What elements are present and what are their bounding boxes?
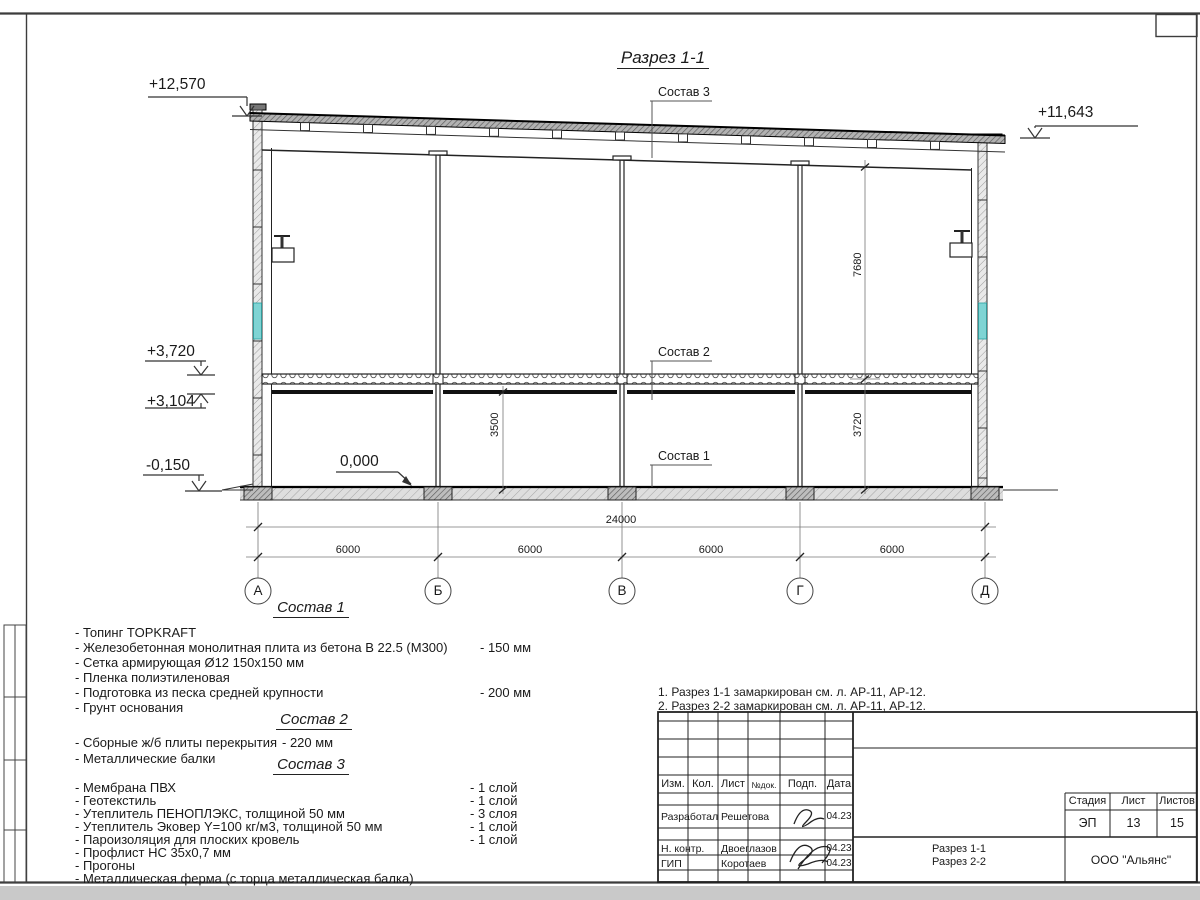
tb-date-1: 04.23 — [825, 811, 853, 822]
dim-bay-2: 6000 — [510, 545, 550, 557]
tb-date-3: 04.23 — [825, 858, 853, 869]
legend-item: - Пленка полиэтиленовая — [75, 670, 230, 685]
tb-company: ООО "Альянс" — [1065, 853, 1197, 867]
dim-height-lower: 3720 — [853, 405, 865, 445]
left-wall — [253, 110, 262, 492]
tb-col-data: Дата — [825, 778, 853, 790]
screen-bottom-strip — [0, 886, 1200, 900]
elevation-floor-bottom: +3,104 — [147, 394, 195, 410]
tb-name-3: Коротаев — [721, 858, 766, 870]
tb-role-1: Разработал — [661, 811, 718, 823]
tb-col-izm: Изм. — [659, 778, 687, 790]
left-wall-glazing — [254, 303, 262, 339]
legend-item: - Топинг TOPKRAFT — [75, 625, 196, 640]
legend-item: - Сетка армирующая Ø12 150x150 мм — [75, 655, 304, 670]
elevation-floor-top: +3,720 — [147, 344, 195, 360]
axis-bubble-d: Д — [973, 584, 997, 598]
tb-stage-label: Стадия — [1065, 795, 1110, 807]
tb-stage-value: ЭП — [1065, 816, 1110, 830]
tb-sheet-value: 13 — [1110, 816, 1157, 830]
elevation-ground: -0,150 — [146, 458, 190, 474]
callout-sostav3: Состав 3 — [658, 86, 710, 99]
tb-col-podp: Подп. — [780, 778, 825, 790]
tb-sheets-label: Листов — [1157, 795, 1197, 807]
callout-sostav2: Состав 2 — [658, 346, 710, 359]
elevation-marks — [143, 97, 1138, 491]
left-margin-boxes — [4, 625, 26, 882]
axis-bubble-b: Б — [426, 584, 450, 598]
axis-bubble-v: В — [610, 584, 634, 598]
note-line-1: 1. Разрез 1-1 замаркирован см. л. АР-11,… — [658, 686, 926, 699]
tb-col-kol: Кол. — [688, 778, 718, 790]
signatures — [790, 810, 830, 869]
legend-item: - Металлические балки — [75, 751, 215, 766]
drawing-sheet: Разрез 1-1 Состав 3 Состав 2 Состав 1 +1… — [0, 0, 1200, 900]
legend-item: - Металлическая ферма (с торца металличе… — [75, 871, 414, 886]
dim-bay-4: 6000 — [872, 545, 912, 557]
wall-brackets — [272, 231, 972, 262]
tb-sheet-label: Лист — [1110, 795, 1157, 807]
building-section — [222, 104, 1058, 500]
drawing-title: Разрез 1-1 — [608, 49, 718, 67]
legend-item: - Грунт основания — [75, 700, 183, 715]
axis-bubble-a: А — [246, 584, 270, 598]
dim-height-upper: 7680 — [853, 245, 865, 285]
tb-sheets-value: 15 — [1157, 816, 1197, 830]
columns — [272, 148, 972, 488]
dim-bay-1: 6000 — [328, 545, 368, 557]
tb-role-3: ГИП — [661, 858, 682, 870]
elevation-zero: 0,000 — [340, 454, 379, 470]
dim-bay-3: 6000 — [691, 545, 731, 557]
callout-leaders — [650, 101, 712, 487]
tb-col-list: Лист — [718, 778, 748, 790]
tb-date-2: 04.23 — [825, 843, 853, 854]
legend-item: - Сборные ж/б плиты перекрытия- 220 мм — [75, 735, 277, 750]
legend-item: - Подготовка из песка средней крупности-… — [75, 685, 323, 700]
tb-name-2: Двоеглазов — [721, 843, 777, 855]
tb-role-2: Н. контр. — [661, 843, 704, 855]
elevation-roof-left: +12,570 — [149, 77, 205, 93]
tb-col-ndok: №док. — [748, 780, 780, 790]
note-line-2: 2. Разрез 2-2 замаркирован см. л. АР-11,… — [658, 700, 926, 713]
axis-bubble-g: Г — [788, 584, 812, 598]
tb-name-1: Решетова — [721, 811, 769, 823]
right-wall-glazing — [979, 303, 987, 339]
elevation-roof-right: +11,643 — [1038, 105, 1093, 121]
dim-total: 24000 — [596, 515, 646, 527]
legend-sostav3-title: Состав 3 — [250, 757, 372, 773]
dimension-ticks — [254, 164, 989, 562]
callout-sostav1: Состав 1 — [658, 450, 710, 463]
legend-sostav1-title: Состав 1 — [250, 600, 372, 616]
legend-item: - Железобетонная монолитная плита из бет… — [75, 640, 448, 655]
dim-height-clear: 3500 — [490, 405, 502, 445]
tb-doc-title: Разрез 1-1 Разрез 2-2 — [853, 843, 1065, 869]
legend-sostav2-title: Состав 2 — [253, 712, 375, 728]
